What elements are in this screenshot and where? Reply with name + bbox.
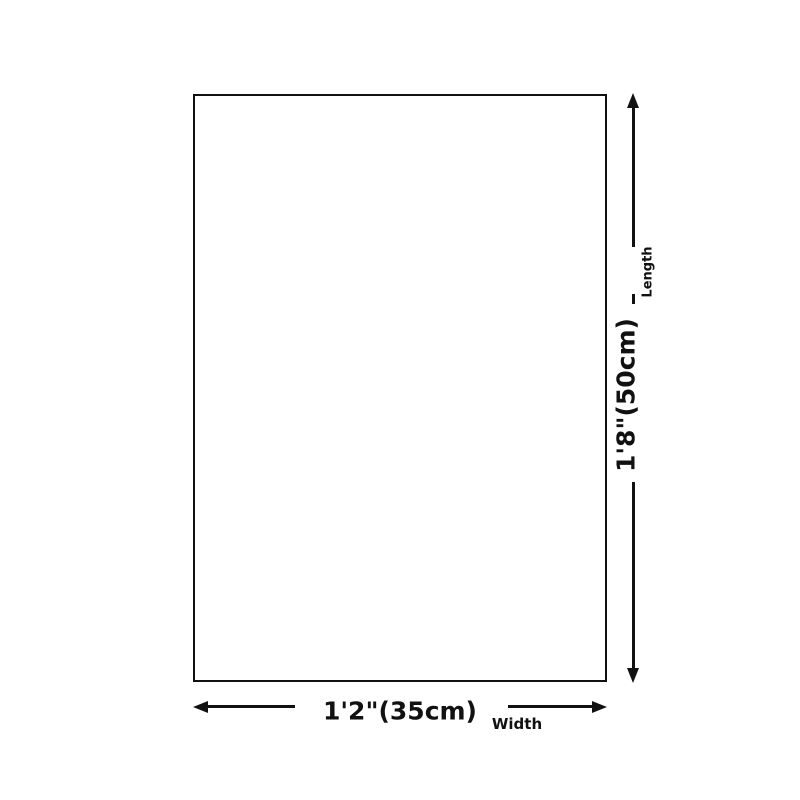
length-label: Length — [641, 246, 656, 297]
arrow-right-icon — [592, 701, 607, 713]
width-arrow-line-right — [508, 705, 594, 708]
width-dimension-value: 1'2"(35cm) — [323, 697, 477, 726]
product-outline-rectangle — [193, 94, 607, 682]
length-arrow-line-top — [632, 106, 635, 247]
width-arrow-line-left — [206, 705, 295, 708]
width-label: Width — [492, 715, 542, 733]
dimension-diagram: Length 1'8"(50cm) 1'2"(35cm) Width — [0, 0, 800, 800]
arrow-down-icon — [627, 668, 639, 683]
length-arrow-line-middle — [632, 294, 635, 304]
length-dimension-value: 1'8"(50cm) — [612, 318, 641, 472]
length-arrow-line-bottom — [632, 482, 635, 670]
